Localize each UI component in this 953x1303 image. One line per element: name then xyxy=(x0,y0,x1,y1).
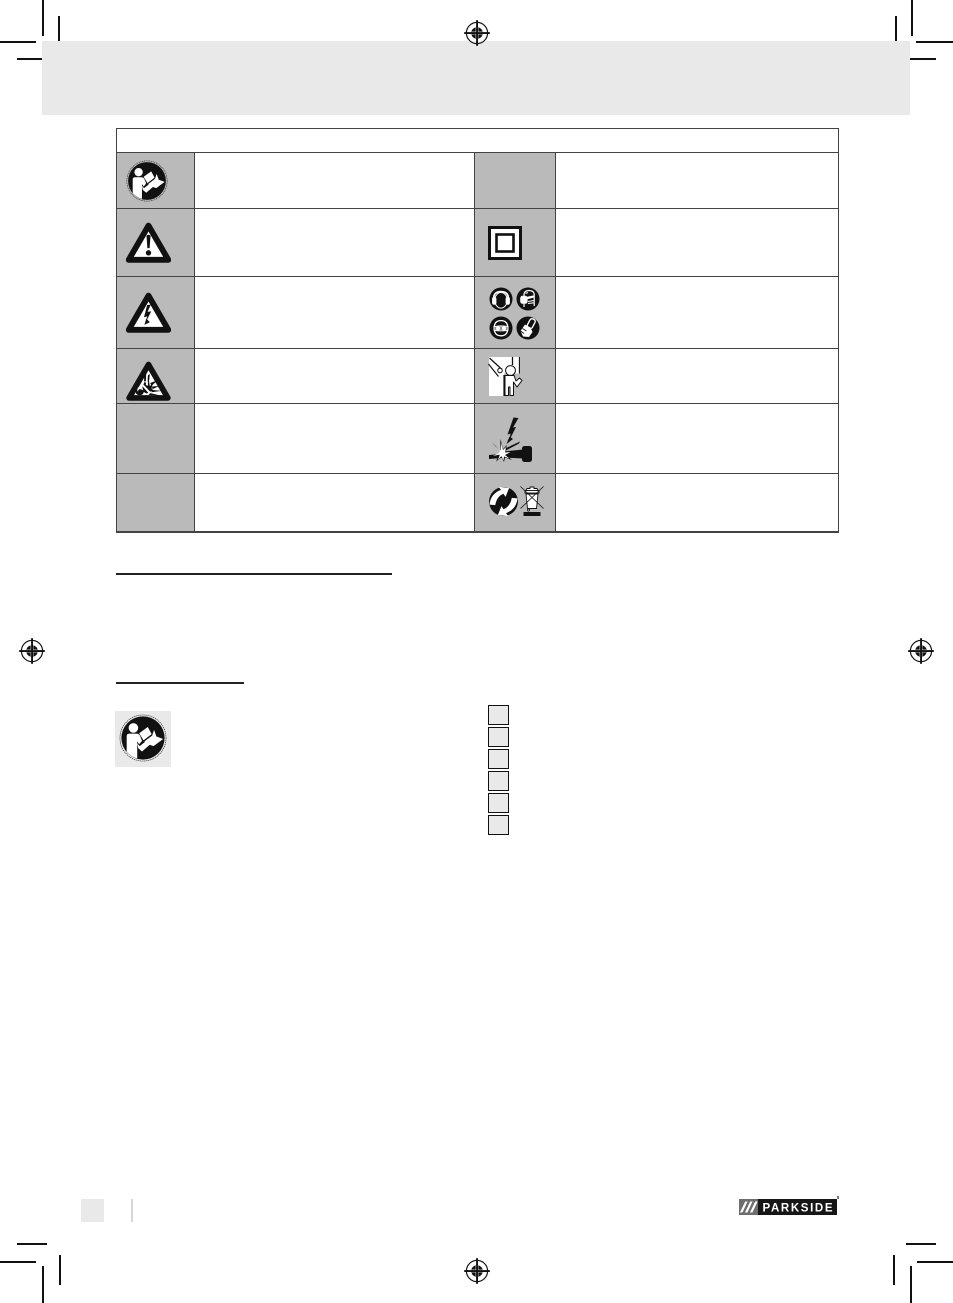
svg-text:PARKSIDE: PARKSIDE xyxy=(763,1202,833,1214)
